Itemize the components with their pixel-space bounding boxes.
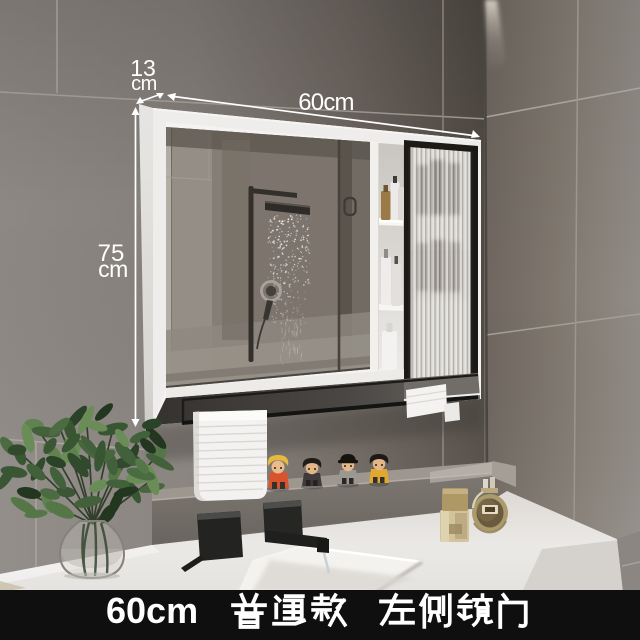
svg-text:cm: cm xyxy=(98,256,128,282)
svg-text:60cm: 60cm xyxy=(106,590,198,631)
svg-text:60cm: 60cm xyxy=(298,89,354,116)
svg-text:cm: cm xyxy=(131,73,157,95)
